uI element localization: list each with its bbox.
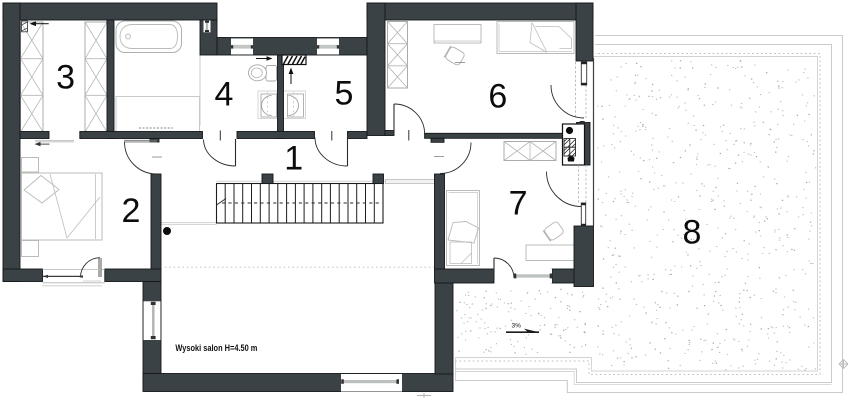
svg-text:2: 2 bbox=[122, 192, 141, 230]
svg-text:7: 7 bbox=[509, 184, 528, 222]
svg-text:5: 5 bbox=[335, 74, 354, 112]
svg-text:3: 3 bbox=[56, 59, 75, 97]
svg-text:4: 4 bbox=[215, 75, 234, 113]
svg-text:3%: 3% bbox=[512, 322, 522, 329]
svg-text:Wysoki salon H=4.50 m: Wysoki salon H=4.50 m bbox=[175, 343, 257, 353]
svg-text:8: 8 bbox=[683, 214, 702, 252]
svg-text:6: 6 bbox=[488, 77, 507, 115]
svg-text:1: 1 bbox=[284, 140, 303, 178]
